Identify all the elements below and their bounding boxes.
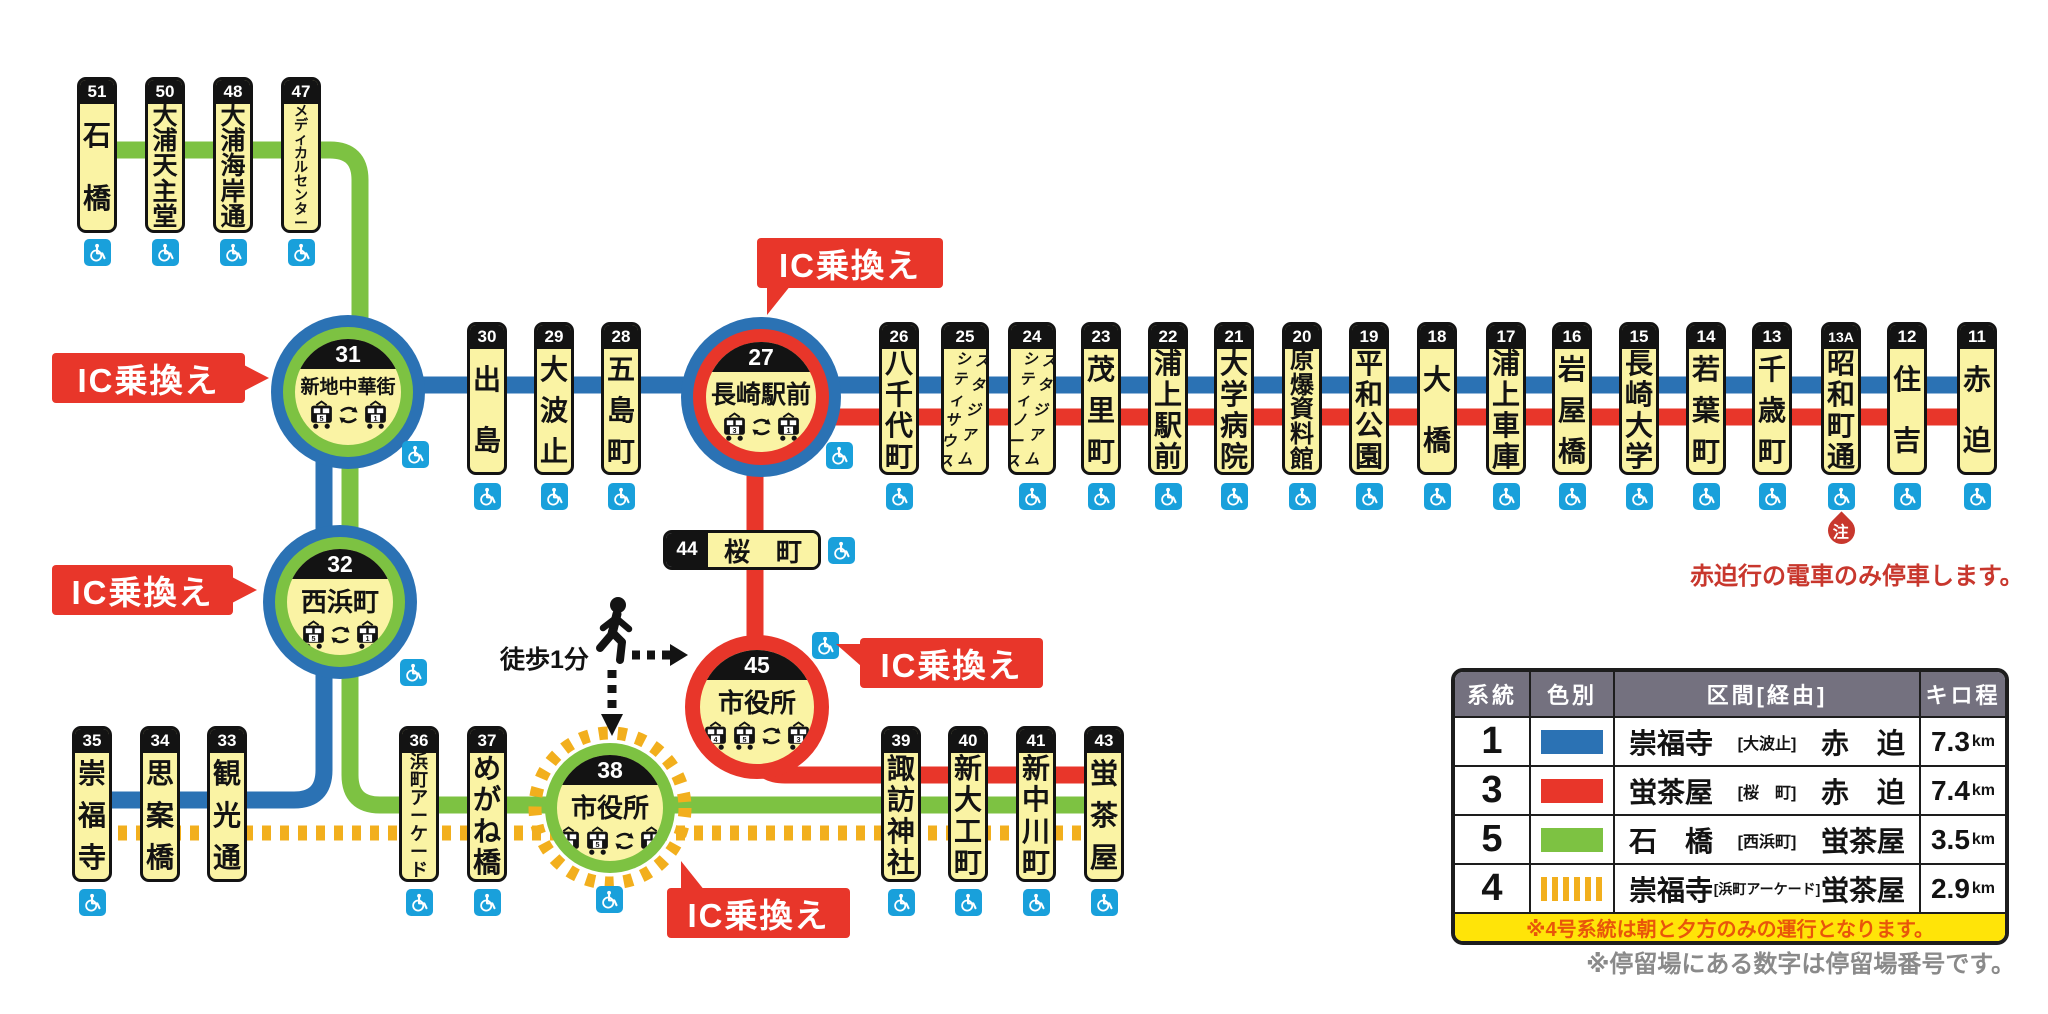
walk-one-minute-label: 徒歩1分 xyxy=(500,640,589,676)
wheelchair-icon xyxy=(220,239,247,266)
station-name: 住吉 xyxy=(1890,349,1924,472)
legend-row-route-3: 3蛍茶屋[桜 町]赤 迫7.4km xyxy=(1455,765,2005,814)
station-name: 観光通 xyxy=(210,753,244,879)
station-name: 出島 xyxy=(470,349,504,472)
svg-text:5: 5 xyxy=(742,735,746,744)
station-name: 若葉町 xyxy=(1689,349,1723,472)
station-number: 33 xyxy=(210,729,244,753)
station-37: 37めがね橋 xyxy=(467,726,507,882)
station-21: 21大学病院 xyxy=(1214,322,1254,475)
section-origin: 崇福寺 xyxy=(1629,722,1713,762)
legend-header-color: 色別 xyxy=(1531,672,1615,716)
svg-text:3: 3 xyxy=(796,735,800,744)
station-number: 13 xyxy=(1755,325,1789,349)
section-via: [浜町アーケード] xyxy=(1714,879,1820,899)
wheelchair-icon xyxy=(288,239,315,266)
wheelchair-icon xyxy=(826,442,853,469)
station-name: スタジアムシティサウス xyxy=(941,349,989,472)
station-29: 29大波止 xyxy=(534,322,574,475)
legend-route-number: 4 xyxy=(1455,865,1531,912)
hub-station-number: 45 xyxy=(700,650,814,680)
ic-badge-label: IC乗換え xyxy=(72,566,214,614)
hub-station-31: 31新地中華街51 xyxy=(283,327,413,457)
legend-rows: 1崇福寺[大波止]赤 迫7.3km3蛍茶屋[桜 町]赤 迫7.4km5石 橋[西… xyxy=(1455,716,2005,912)
svg-text:5: 5 xyxy=(311,634,315,643)
wheelchair-icon xyxy=(1828,483,1855,510)
svg-text:3: 3 xyxy=(649,840,653,849)
legend-color-swatch xyxy=(1531,718,1615,765)
station-name: 崇福寺 xyxy=(75,753,109,879)
station-name: 大学病院 xyxy=(1217,349,1251,472)
svg-text:5: 5 xyxy=(319,414,323,423)
legend-distance: 7.4km xyxy=(1921,767,2005,814)
station-24: 24スタジアムシティノース xyxy=(1008,322,1056,475)
hub-station-38: 38市役所453 xyxy=(545,743,675,873)
station-number: 50 xyxy=(148,80,182,104)
station-14: 14若葉町 xyxy=(1686,322,1726,475)
station-name: 桜町 xyxy=(708,533,818,567)
station-name: 岩屋橋 xyxy=(1555,349,1589,472)
station-28: 28五島町 xyxy=(601,322,641,475)
hub-station-45: 45市役所453 xyxy=(685,635,829,779)
station-25: 25スタジアムシティサウス xyxy=(941,322,989,475)
hub-station-number: 38 xyxy=(557,755,663,785)
wheelchair-icon xyxy=(474,889,501,916)
section-origin: 崇福寺 xyxy=(1629,869,1713,909)
station-name: 大浦海岸通 xyxy=(216,104,250,230)
hub-station-name: 長崎駅前 xyxy=(711,375,811,411)
legend-header-section: 区間[経由] xyxy=(1615,672,1921,716)
station-48: 48大浦海岸通 xyxy=(213,77,253,233)
tram-transfer-icons: 453 xyxy=(557,826,663,856)
station-number: 14 xyxy=(1689,325,1723,349)
station-26: 26八千代町 xyxy=(879,322,919,475)
svg-text:4: 4 xyxy=(713,735,717,744)
wheelchair-icon xyxy=(1356,483,1383,510)
station-number: 30 xyxy=(470,325,504,349)
station-number: 15 xyxy=(1622,325,1656,349)
station-name: めがね橋 xyxy=(470,753,504,879)
legend-route-number: 3 xyxy=(1455,767,1531,814)
station-number: 41 xyxy=(1019,729,1053,753)
wheelchair-icon xyxy=(1559,483,1586,510)
station-44: 44桜町 xyxy=(663,530,821,570)
station-number: 20 xyxy=(1285,325,1319,349)
station-number: 13A xyxy=(1824,325,1858,349)
station-name: スタジアムシティノース xyxy=(1008,349,1056,472)
station-name: 長崎大学 xyxy=(1622,349,1656,472)
station-name: 原爆資料館 xyxy=(1285,349,1319,472)
station-20: 20原爆資料館 xyxy=(1282,322,1322,475)
wheelchair-icon xyxy=(1088,483,1115,510)
hub-station-name: 新地中華街 xyxy=(300,372,395,399)
station-name: 大波止 xyxy=(537,349,571,472)
station-number: 23 xyxy=(1084,325,1118,349)
wheelchair-icon xyxy=(596,886,623,913)
wheelchair-icon xyxy=(1894,483,1921,510)
station-name: 浦上車庫 xyxy=(1489,349,1523,472)
legend-header-route: 系統 xyxy=(1455,672,1531,716)
station-number: 11 xyxy=(1960,325,1994,349)
legend-color-swatch xyxy=(1531,865,1615,912)
station-30: 30出島 xyxy=(467,322,507,475)
station-number: 43 xyxy=(1087,729,1121,753)
wheelchair-icon xyxy=(1221,483,1248,510)
ic-badge-shinchi: IC乗換え xyxy=(52,353,245,403)
station-name: 浜町アーケード xyxy=(402,753,436,879)
station-39: 39諏訪神社 xyxy=(881,726,921,882)
ic-badge-shiyakusho45: IC乗換え xyxy=(860,638,1043,688)
legend-color-swatch xyxy=(1531,767,1615,814)
station-number: 22 xyxy=(1151,325,1185,349)
station-22: 22浦上駅前 xyxy=(1148,322,1188,475)
station-15: 15長崎大学 xyxy=(1619,322,1659,475)
station-36: 36浜町アーケード xyxy=(399,726,439,882)
legend-route-number: 5 xyxy=(1455,816,1531,863)
station-name: 蛍茶屋 xyxy=(1087,753,1121,879)
hub-station-27: 27長崎駅前31 xyxy=(693,329,829,465)
legend-section: 石 橋[西浜町]蛍茶屋 xyxy=(1615,816,1921,863)
station-number: 48 xyxy=(216,80,250,104)
station-34: 34思案橋 xyxy=(140,726,180,882)
station-name: 赤迫 xyxy=(1960,349,1994,472)
station-name: 石橋 xyxy=(80,104,114,230)
station-17: 17浦上車庫 xyxy=(1486,322,1526,475)
hub-station-name: 市役所 xyxy=(571,788,649,825)
station-number: 29 xyxy=(537,325,571,349)
ic-badge-nagasakieki: IC乗換え xyxy=(757,238,943,288)
station-16: 16岩屋橋 xyxy=(1552,322,1592,475)
tram-route-map: 徒歩1分 注 赤迫行の電車のみ停車します。 系統 色別 区間[経由] キロ程 xyxy=(0,0,2048,1014)
legend-distance: 7.3km xyxy=(1921,718,2005,765)
station-13A: 13A昭和町通 xyxy=(1821,322,1861,475)
akasako-only-note: 赤迫行の電車のみ停車します。 xyxy=(1690,556,2000,591)
legend-distance: 2.9km xyxy=(1921,865,2005,912)
station-number: 28 xyxy=(604,325,638,349)
wheelchair-icon xyxy=(1289,483,1316,510)
ic-badge-label: IC乗換え xyxy=(688,889,830,937)
wheelchair-icon xyxy=(1023,889,1050,916)
badge-pointer xyxy=(232,577,257,603)
station-number: 12 xyxy=(1890,325,1924,349)
section-via: [大波止] xyxy=(1738,730,1797,754)
station-number: 21 xyxy=(1217,325,1251,349)
station-number: 37 xyxy=(470,729,504,753)
wheelchair-icon xyxy=(955,889,982,916)
station-41: 41新中川町 xyxy=(1016,726,1056,882)
station-47: 47メディカルセンター xyxy=(281,77,321,233)
section-via: [西浜町] xyxy=(1738,828,1797,852)
station-name: 新大工町 xyxy=(951,753,985,879)
section-destination: 蛍茶屋 xyxy=(1821,820,1905,860)
ic-badge-shiyakusho38: IC乗換え xyxy=(667,888,850,938)
station-number: 36 xyxy=(402,729,436,753)
hub-station-32: 32西浜町51 xyxy=(275,537,405,667)
station-50: 50大浦天主堂 xyxy=(145,77,185,233)
station-23: 23茂里町 xyxy=(1081,322,1121,475)
station-number: 18 xyxy=(1420,325,1454,349)
badge-pointer xyxy=(681,861,705,891)
legend-header-distance: キロ程 xyxy=(1921,672,2005,716)
station-number: 26 xyxy=(882,325,916,349)
hub-station-number: 27 xyxy=(706,342,816,372)
ic-badge-label: IC乗換え xyxy=(881,639,1023,687)
svg-text:5: 5 xyxy=(595,840,599,849)
section-destination: 赤 迫 xyxy=(1821,771,1905,811)
wheelchair-icon xyxy=(406,889,433,916)
station-number: 17 xyxy=(1489,325,1523,349)
station-19: 19平和公園 xyxy=(1349,322,1389,475)
wheelchair-icon xyxy=(828,537,855,564)
wheelchair-icon xyxy=(1155,483,1182,510)
svg-text:4: 4 xyxy=(566,840,570,849)
station-11: 11赤迫 xyxy=(1957,322,1997,475)
station-number: 47 xyxy=(284,80,318,104)
wheelchair-icon xyxy=(888,889,915,916)
wheelchair-icon xyxy=(400,659,427,686)
svg-text:3: 3 xyxy=(732,426,736,435)
route-legend-table: 系統 色別 区間[経由] キロ程 1崇福寺[大波止]赤 迫7.3km3蛍茶屋[桜… xyxy=(1451,668,2009,945)
wheelchair-icon xyxy=(608,483,635,510)
tram-transfer-icons: 31 xyxy=(720,412,803,442)
station-number: 25 xyxy=(944,325,986,349)
station-name: 八千代町 xyxy=(882,349,916,472)
wheelchair-icon xyxy=(474,483,501,510)
station-40: 40新大工町 xyxy=(948,726,988,882)
wheelchair-icon xyxy=(541,483,568,510)
station-number: 51 xyxy=(80,80,114,104)
station-name: 大橋 xyxy=(1420,349,1454,472)
station-12: 12住吉 xyxy=(1887,322,1927,475)
wheelchair-icon xyxy=(84,239,111,266)
route-color-yellow xyxy=(1541,877,1603,901)
station-name: 大浦天主堂 xyxy=(148,104,182,230)
station-43: 43蛍茶屋 xyxy=(1084,726,1124,882)
legend-section: 蛍茶屋[桜 町]赤 迫 xyxy=(1615,767,1921,814)
station-name: 思案橋 xyxy=(143,753,177,879)
svg-text:1: 1 xyxy=(365,634,369,643)
svg-text:1: 1 xyxy=(786,426,790,435)
legend-row-route-5: 5石 橋[西浜町]蛍茶屋3.5km xyxy=(1455,814,2005,863)
svg-text:1: 1 xyxy=(373,414,377,423)
badge-pointer xyxy=(767,285,791,315)
station-35: 35崇福寺 xyxy=(72,726,112,882)
station-name: 五島町 xyxy=(604,349,638,472)
walk-arrow-right-icon xyxy=(630,644,688,671)
note-mark-icon: 注 xyxy=(1822,511,1860,549)
badge-pointer xyxy=(244,365,269,391)
section-via: [桜 町] xyxy=(1738,779,1797,803)
legend-row-route-4: 4崇福寺[浜町アーケード]蛍茶屋2.9km xyxy=(1455,863,2005,912)
wheelchair-icon xyxy=(886,483,913,510)
station-51: 51石橋 xyxy=(77,77,117,233)
section-origin: 石 橋 xyxy=(1629,820,1713,860)
wheelchair-icon xyxy=(1626,483,1653,510)
route-color-blue xyxy=(1541,730,1603,754)
station-18: 18大橋 xyxy=(1417,322,1457,475)
route-color-green xyxy=(1541,828,1603,852)
station-number: 39 xyxy=(884,729,918,753)
ic-badge-nishihamanomachi: IC乗換え xyxy=(52,565,233,615)
section-origin: 蛍茶屋 xyxy=(1629,771,1713,811)
section-destination: 赤 迫 xyxy=(1821,722,1905,762)
legend-section: 崇福寺[大波止]赤 迫 xyxy=(1615,718,1921,765)
station-number: 35 xyxy=(75,729,109,753)
badge-pointer xyxy=(836,644,861,666)
station-name: 昭和町通 xyxy=(1824,349,1858,472)
hub-station-number: 31 xyxy=(295,339,401,369)
route4-service-banner: ※4号系統は朝と夕方のみの運行となります。 xyxy=(1455,912,2005,941)
station-name: 平和公園 xyxy=(1352,349,1386,472)
ic-badge-label: IC乗換え xyxy=(779,239,921,287)
tram-transfer-icons: 51 xyxy=(307,400,390,430)
wheelchair-icon xyxy=(1091,889,1118,916)
hub-station-name: 市役所 xyxy=(718,683,796,720)
station-13: 13千歳町 xyxy=(1752,322,1792,475)
wheelchair-icon xyxy=(1424,483,1451,510)
station-name: 茂里町 xyxy=(1084,349,1118,472)
station-number-footnote: ※停留場にある数字は停留場番号です。 xyxy=(1440,944,2015,979)
station-name: 浦上駅前 xyxy=(1151,349,1185,472)
legend-row-route-1: 1崇福寺[大波止]赤 迫7.3km xyxy=(1455,716,2005,765)
station-name: 新中川町 xyxy=(1019,753,1053,879)
wheelchair-icon xyxy=(1964,483,1991,510)
wheelchair-icon xyxy=(1493,483,1520,510)
station-number: 19 xyxy=(1352,325,1386,349)
legend-header-row: 系統 色別 区間[経由] キロ程 xyxy=(1455,672,2005,716)
station-number: 16 xyxy=(1555,325,1589,349)
walk-arrow-down-icon xyxy=(601,668,623,743)
route-color-red xyxy=(1541,779,1603,803)
legend-color-swatch xyxy=(1531,816,1615,863)
station-name: 諏訪神社 xyxy=(884,753,918,879)
station-number: 44 xyxy=(666,533,708,567)
legend-distance: 3.5km xyxy=(1921,816,2005,863)
station-number: 24 xyxy=(1011,325,1053,349)
wheelchair-icon xyxy=(152,239,179,266)
wheelchair-icon xyxy=(812,632,839,659)
legend-route-number: 1 xyxy=(1455,718,1531,765)
station-number: 40 xyxy=(951,729,985,753)
tram-transfer-icons: 51 xyxy=(299,620,382,650)
hub-station-number: 32 xyxy=(287,549,393,579)
section-destination: 蛍茶屋 xyxy=(1821,869,1905,909)
hub-station-name: 西浜町 xyxy=(301,582,379,619)
wheelchair-icon xyxy=(79,889,106,916)
tram-transfer-icons: 453 xyxy=(701,721,813,751)
ic-badge-label: IC乗換え xyxy=(78,354,220,402)
legend-section: 崇福寺[浜町アーケード]蛍茶屋 xyxy=(1615,865,1921,912)
wheelchair-icon xyxy=(1019,483,1046,510)
station-name: メディカルセンター xyxy=(284,104,318,230)
wheelchair-icon xyxy=(1693,483,1720,510)
wheelchair-icon xyxy=(402,441,429,468)
wheelchair-icon xyxy=(1759,483,1786,510)
station-33: 33観光通 xyxy=(207,726,247,882)
station-number: 34 xyxy=(143,729,177,753)
station-name: 千歳町 xyxy=(1755,349,1789,472)
